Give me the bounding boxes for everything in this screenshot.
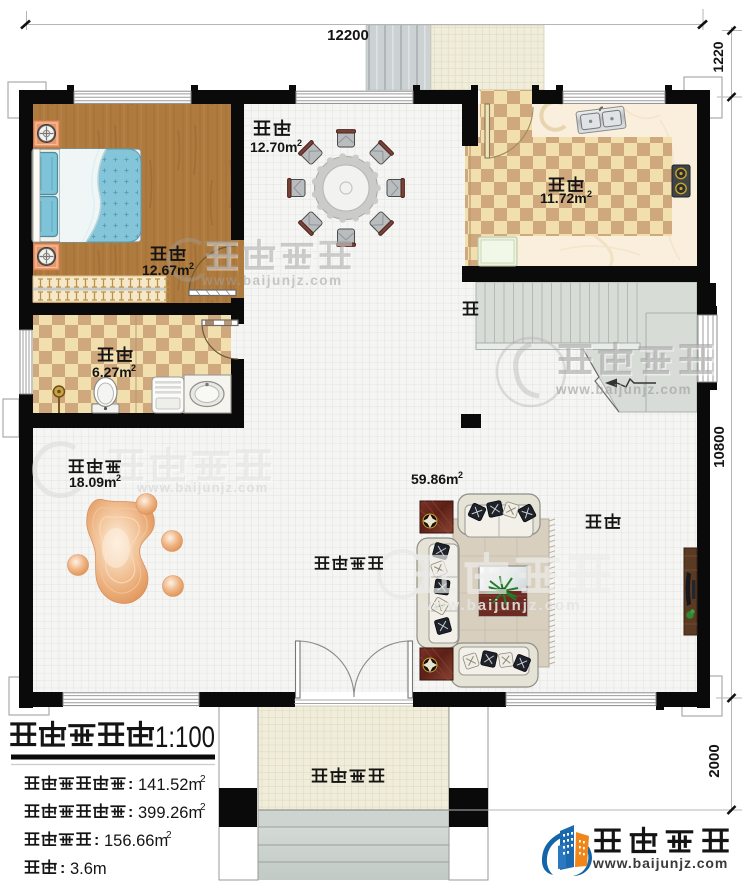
svg-text::: : [60,860,65,877]
svg-text:2: 2 [458,470,463,480]
svg-text:12200: 12200 [327,27,369,44]
svg-text:www.baijunjz.com: www.baijunjz.com [201,273,343,288]
svg-text:www.baijunjz.com: www.baijunjz.com [419,597,581,614]
svg-text:1220: 1220 [710,41,726,72]
svg-text:11.72m: 11.72m [540,190,587,206]
svg-text:2: 2 [131,363,136,373]
svg-text:2: 2 [200,802,206,813]
svg-text:2: 2 [200,774,206,785]
svg-text:2: 2 [297,138,302,148]
svg-text:2: 2 [116,473,121,483]
svg-text:2: 2 [587,189,592,199]
svg-text:399.26m: 399.26m [138,804,202,822]
svg-text:www.baijunjz.com: www.baijunjz.com [555,382,692,397]
svg-text:12.67m: 12.67m [142,262,189,278]
svg-text:2: 2 [166,830,172,841]
svg-text:www.baijunjz.com: www.baijunjz.com [136,480,268,495]
svg-text:12.70m: 12.70m [250,139,297,155]
svg-text:www.baijunjz.com: www.baijunjz.com [592,855,728,871]
svg-text:6.27m: 6.27m [92,364,132,380]
svg-text:3.6m: 3.6m [70,860,107,878]
svg-text:1:100: 1:100 [155,721,215,754]
svg-text::: : [128,776,133,793]
svg-text:59.86m: 59.86m [411,471,458,487]
svg-text:2: 2 [189,261,194,271]
svg-text:10800: 10800 [711,426,728,468]
svg-text:141.52m: 141.52m [138,776,202,794]
svg-text:156.66m: 156.66m [104,832,168,850]
svg-text::: : [128,804,133,821]
svg-text:2000: 2000 [706,744,723,777]
svg-text:18.09m: 18.09m [69,474,116,490]
svg-text::: : [94,832,99,849]
